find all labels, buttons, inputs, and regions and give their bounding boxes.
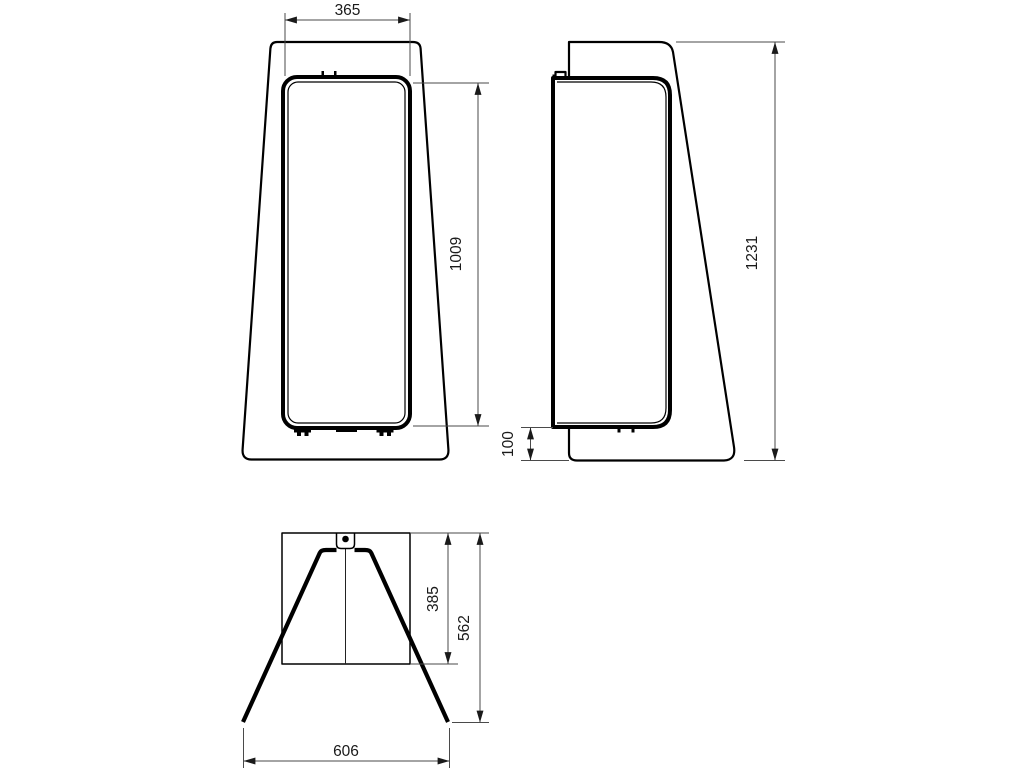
side-bottom-tick-2 bbox=[632, 427, 635, 433]
side-top-tab-notch bbox=[553, 75, 557, 79]
dim-606-label: 606 bbox=[333, 743, 359, 760]
plan-leg-right bbox=[355, 550, 449, 722]
front-foot-left bbox=[294, 428, 311, 433]
dim-1231-label: 1231 bbox=[744, 236, 761, 270]
front-view: 365 1009 bbox=[243, 2, 489, 460]
plan-leg-left bbox=[243, 550, 337, 722]
side-panel bbox=[553, 78, 670, 427]
front-top-tick-right bbox=[334, 71, 337, 78]
technical-drawing: 365 1009 1231 bbox=[0, 0, 1024, 768]
front-bottom-tab bbox=[336, 428, 357, 433]
plan-view: 385 562 606 bbox=[243, 533, 489, 768]
front-panel bbox=[283, 77, 410, 428]
front-foot-right-tooth-1 bbox=[380, 433, 384, 437]
dim-385-label: 385 bbox=[425, 586, 442, 612]
front-foot-right bbox=[377, 428, 394, 433]
dim-front-panel-height: 1009 bbox=[413, 83, 489, 426]
dim-562-label: 562 bbox=[456, 615, 473, 641]
dim-side-bottom-offset: 100 bbox=[500, 428, 569, 461]
dim-365-label: 365 bbox=[335, 2, 361, 19]
dim-plan-body-depth: 385 bbox=[410, 533, 489, 664]
dim-100-label: 100 bbox=[500, 431, 517, 457]
dim-plan-overall-width: 606 bbox=[244, 728, 450, 768]
drawing-canvas: 365 1009 1231 bbox=[0, 0, 1024, 768]
front-foot-right-tooth-2 bbox=[387, 433, 391, 437]
side-view: 1231 100 bbox=[500, 42, 785, 461]
front-top-tick-left bbox=[322, 71, 325, 78]
dim-1009-label: 1009 bbox=[448, 237, 465, 271]
side-top-tab bbox=[556, 72, 566, 78]
side-bottom-tick-1 bbox=[618, 427, 621, 433]
plan-drain-dot bbox=[342, 536, 349, 543]
front-foot-left-tooth-1 bbox=[297, 433, 301, 437]
dim-plan-overall-depth: 562 bbox=[452, 533, 489, 723]
dim-front-top-width: 365 bbox=[285, 2, 410, 76]
front-foot-left-tooth-2 bbox=[305, 433, 309, 437]
